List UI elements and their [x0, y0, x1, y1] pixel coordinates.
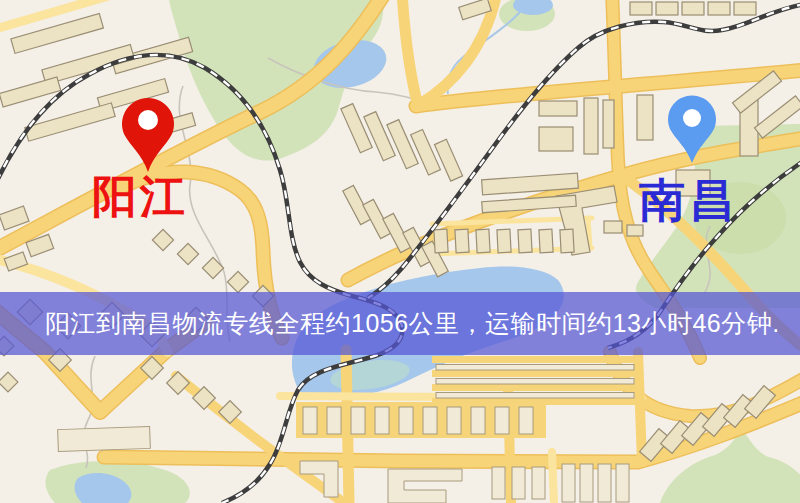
destination-pin-hole — [683, 109, 701, 127]
map-canvas: 阳江 南昌 — [0, 0, 800, 503]
route-summary-banner: 阳江到南昌物流专线全程约1056公里，运输时间约13小时46分钟. — [0, 292, 800, 355]
logistics-route-map-image: 阳江 南昌 阳江到南昌物流专线全程约1056公里，运输时间约13小时46分钟. — [0, 0, 800, 503]
market-band — [296, 402, 546, 438]
destination-label: 南昌 — [639, 174, 739, 226]
origin-label: 阳江 — [92, 170, 188, 223]
origin-pin-hole — [138, 110, 158, 130]
route-summary-text: 阳江到南昌物流专线全程约1056公里，运输时间约13小时46分钟. — [45, 307, 780, 340]
